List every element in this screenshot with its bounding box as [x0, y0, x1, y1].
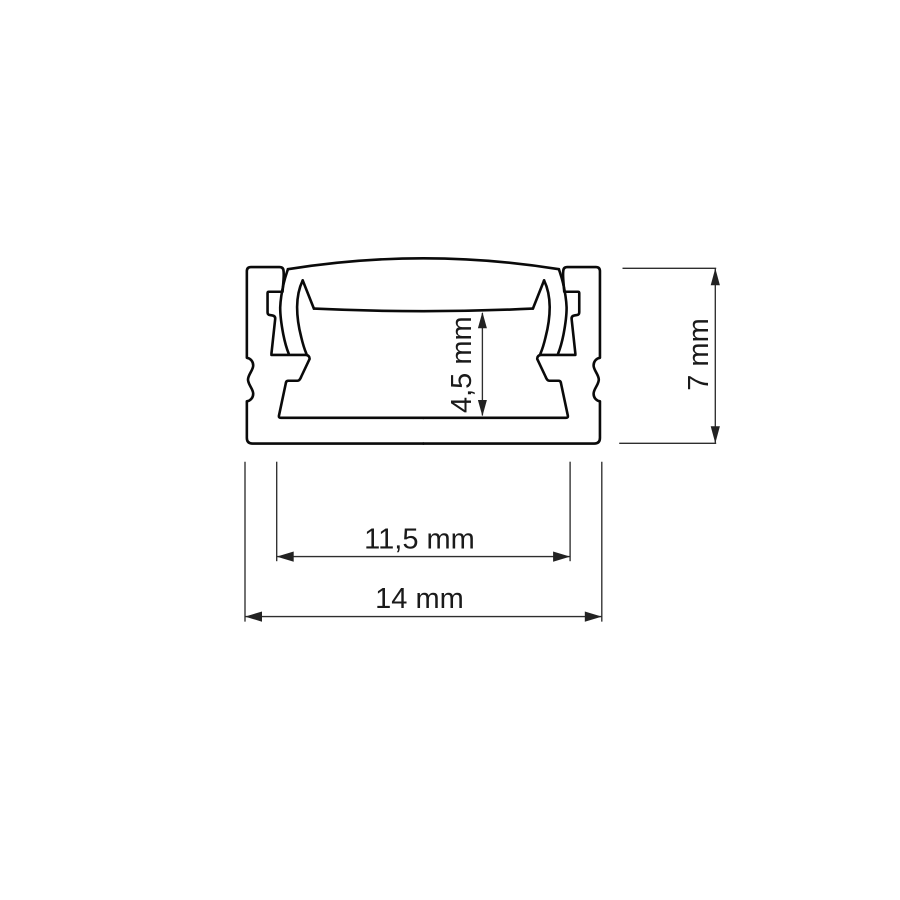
svg-text:7 mm: 7 mm — [683, 318, 715, 391]
svg-text:11,5 mm: 11,5 mm — [364, 523, 475, 555]
svg-text:14 mm: 14 mm — [375, 583, 464, 615]
svg-text:4,5 mm: 4,5 mm — [446, 316, 478, 413]
